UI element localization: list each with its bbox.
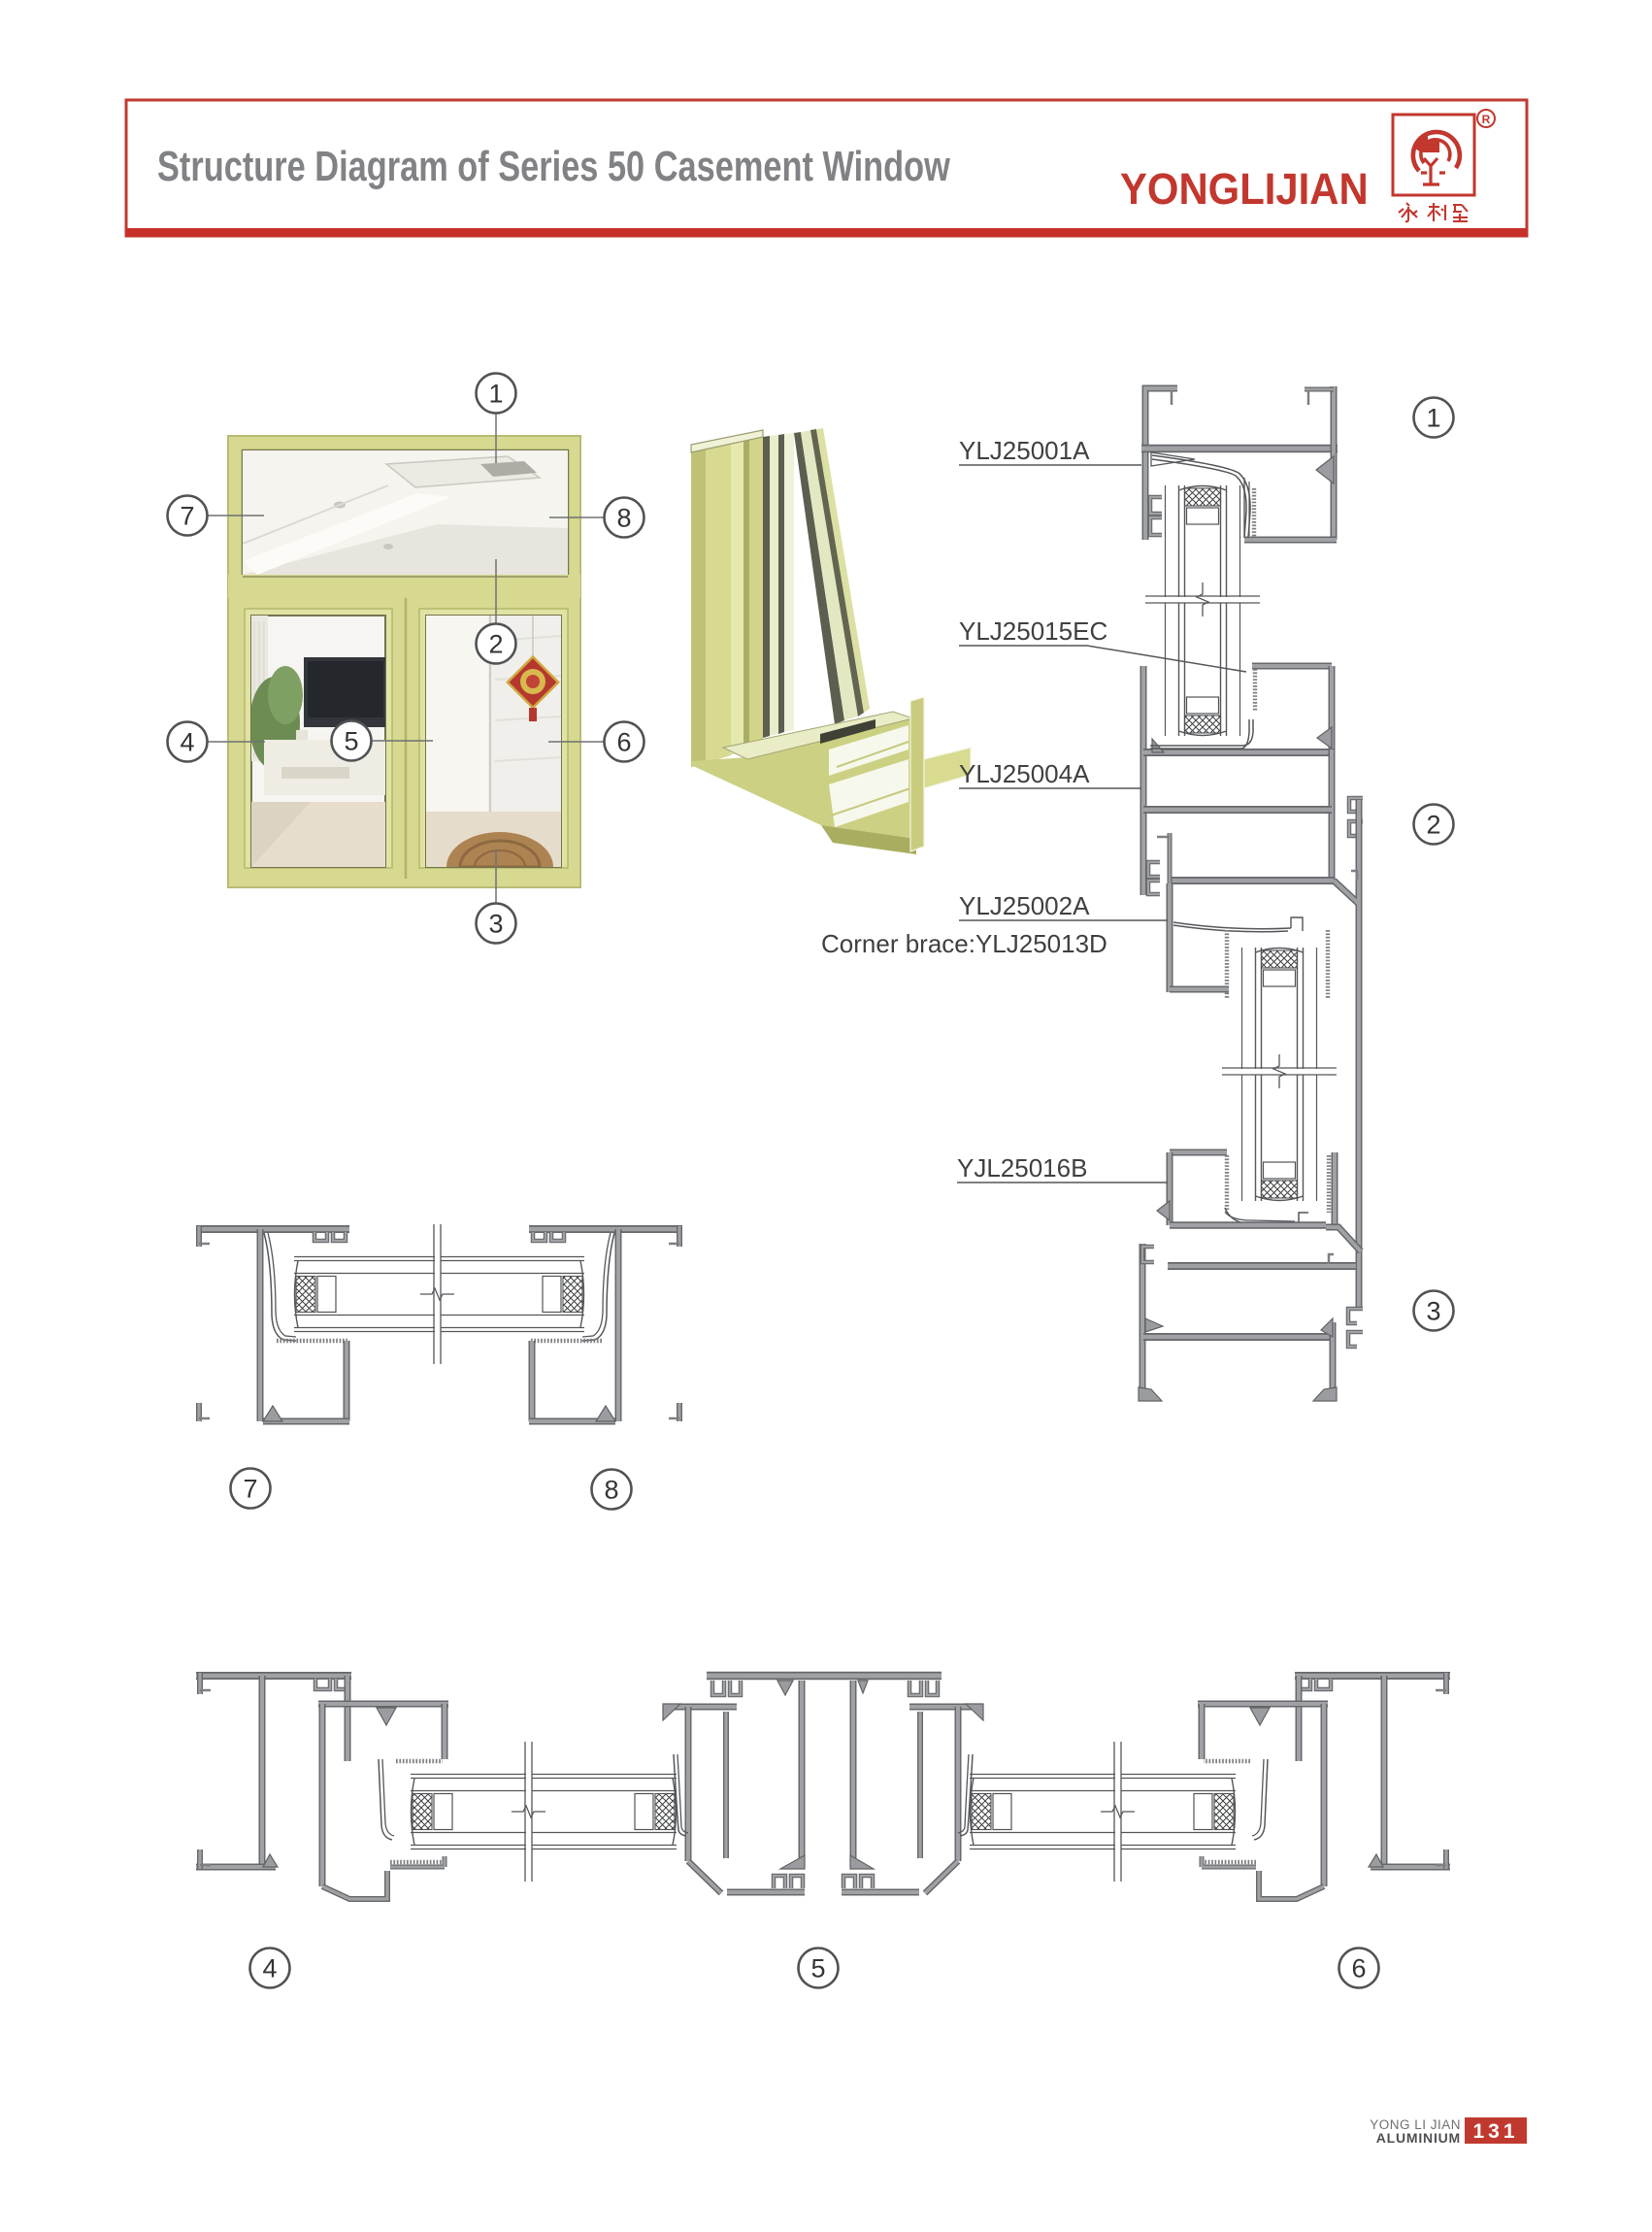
svg-text:YLJ25004A: YLJ25004A <box>959 759 1090 788</box>
svg-text:6: 6 <box>616 728 631 757</box>
svg-text:1: 1 <box>488 380 503 409</box>
svg-text:7: 7 <box>243 1475 257 1504</box>
svg-text:2: 2 <box>488 630 503 659</box>
svg-text:8: 8 <box>616 504 631 533</box>
svg-text:YJL25016B: YJL25016B <box>957 1153 1087 1183</box>
svg-text:YLJ25001A: YLJ25001A <box>959 436 1090 465</box>
svg-text:5: 5 <box>344 727 358 756</box>
svg-text:YLJ25015EC: YLJ25015EC <box>959 616 1107 646</box>
svg-text:R: R <box>1482 113 1491 126</box>
svg-text:Structure Diagram of Series 50: Structure Diagram of Series 50 Casement … <box>157 144 950 190</box>
svg-text:Corner brace:YLJ25013D: Corner brace:YLJ25013D <box>821 929 1107 958</box>
svg-text:131: 131 <box>1472 2120 1518 2143</box>
svg-text:4: 4 <box>180 728 194 757</box>
svg-text:1: 1 <box>1426 404 1440 433</box>
svg-text:4: 4 <box>262 1954 277 1983</box>
svg-text:3: 3 <box>488 910 503 939</box>
svg-text:7: 7 <box>180 502 194 531</box>
svg-text:ALUMINIUM: ALUMINIUM <box>1376 2130 1461 2146</box>
svg-text:3: 3 <box>1426 1297 1440 1326</box>
svg-text:YONGLIJIAN: YONGLIJIAN <box>1120 166 1369 215</box>
svg-text:2: 2 <box>1426 811 1440 840</box>
svg-text:8: 8 <box>604 1476 618 1505</box>
svg-text:5: 5 <box>810 1954 825 1983</box>
svg-text:YLJ25002A: YLJ25002A <box>959 891 1090 920</box>
svg-text:6: 6 <box>1351 1954 1366 1983</box>
